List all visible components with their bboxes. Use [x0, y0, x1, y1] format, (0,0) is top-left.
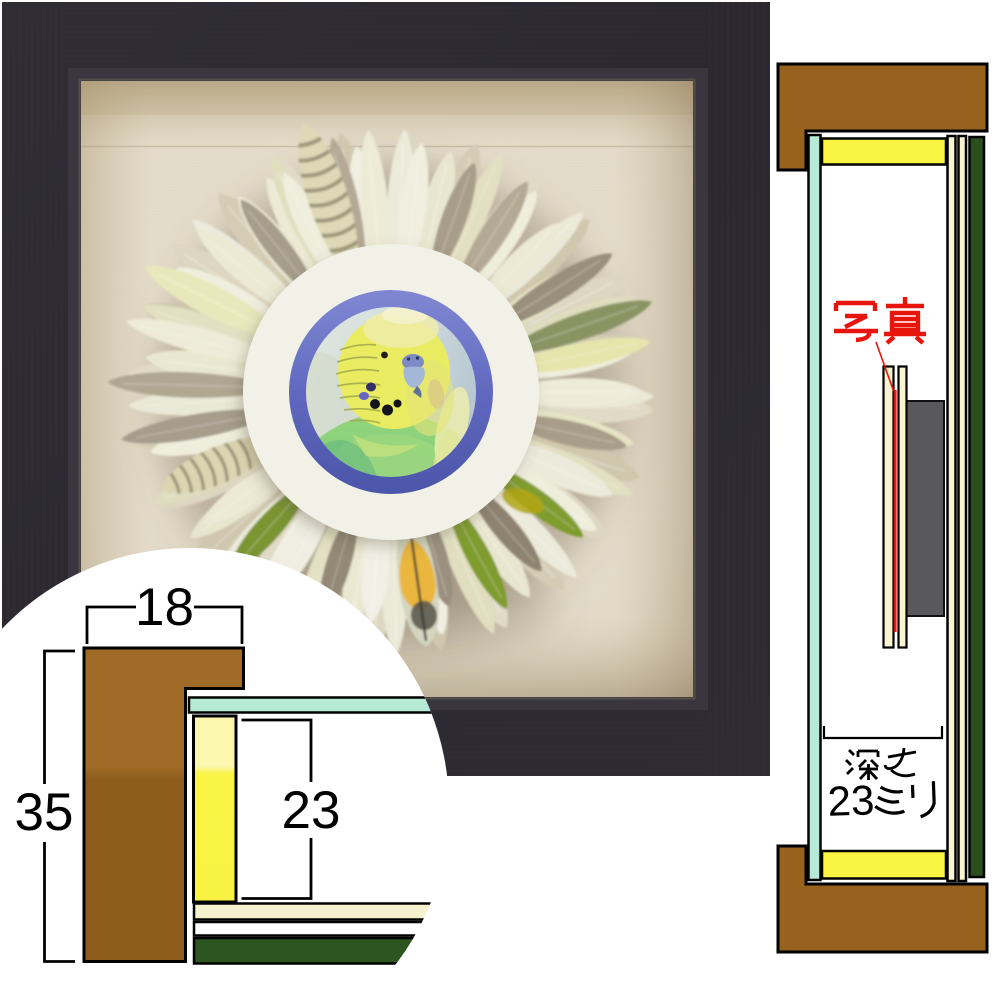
svg-text:23: 23 [827, 776, 875, 825]
svg-text:35: 35 [15, 783, 74, 842]
svg-text:18: 18 [135, 578, 194, 637]
svg-text:23: 23 [282, 781, 341, 840]
